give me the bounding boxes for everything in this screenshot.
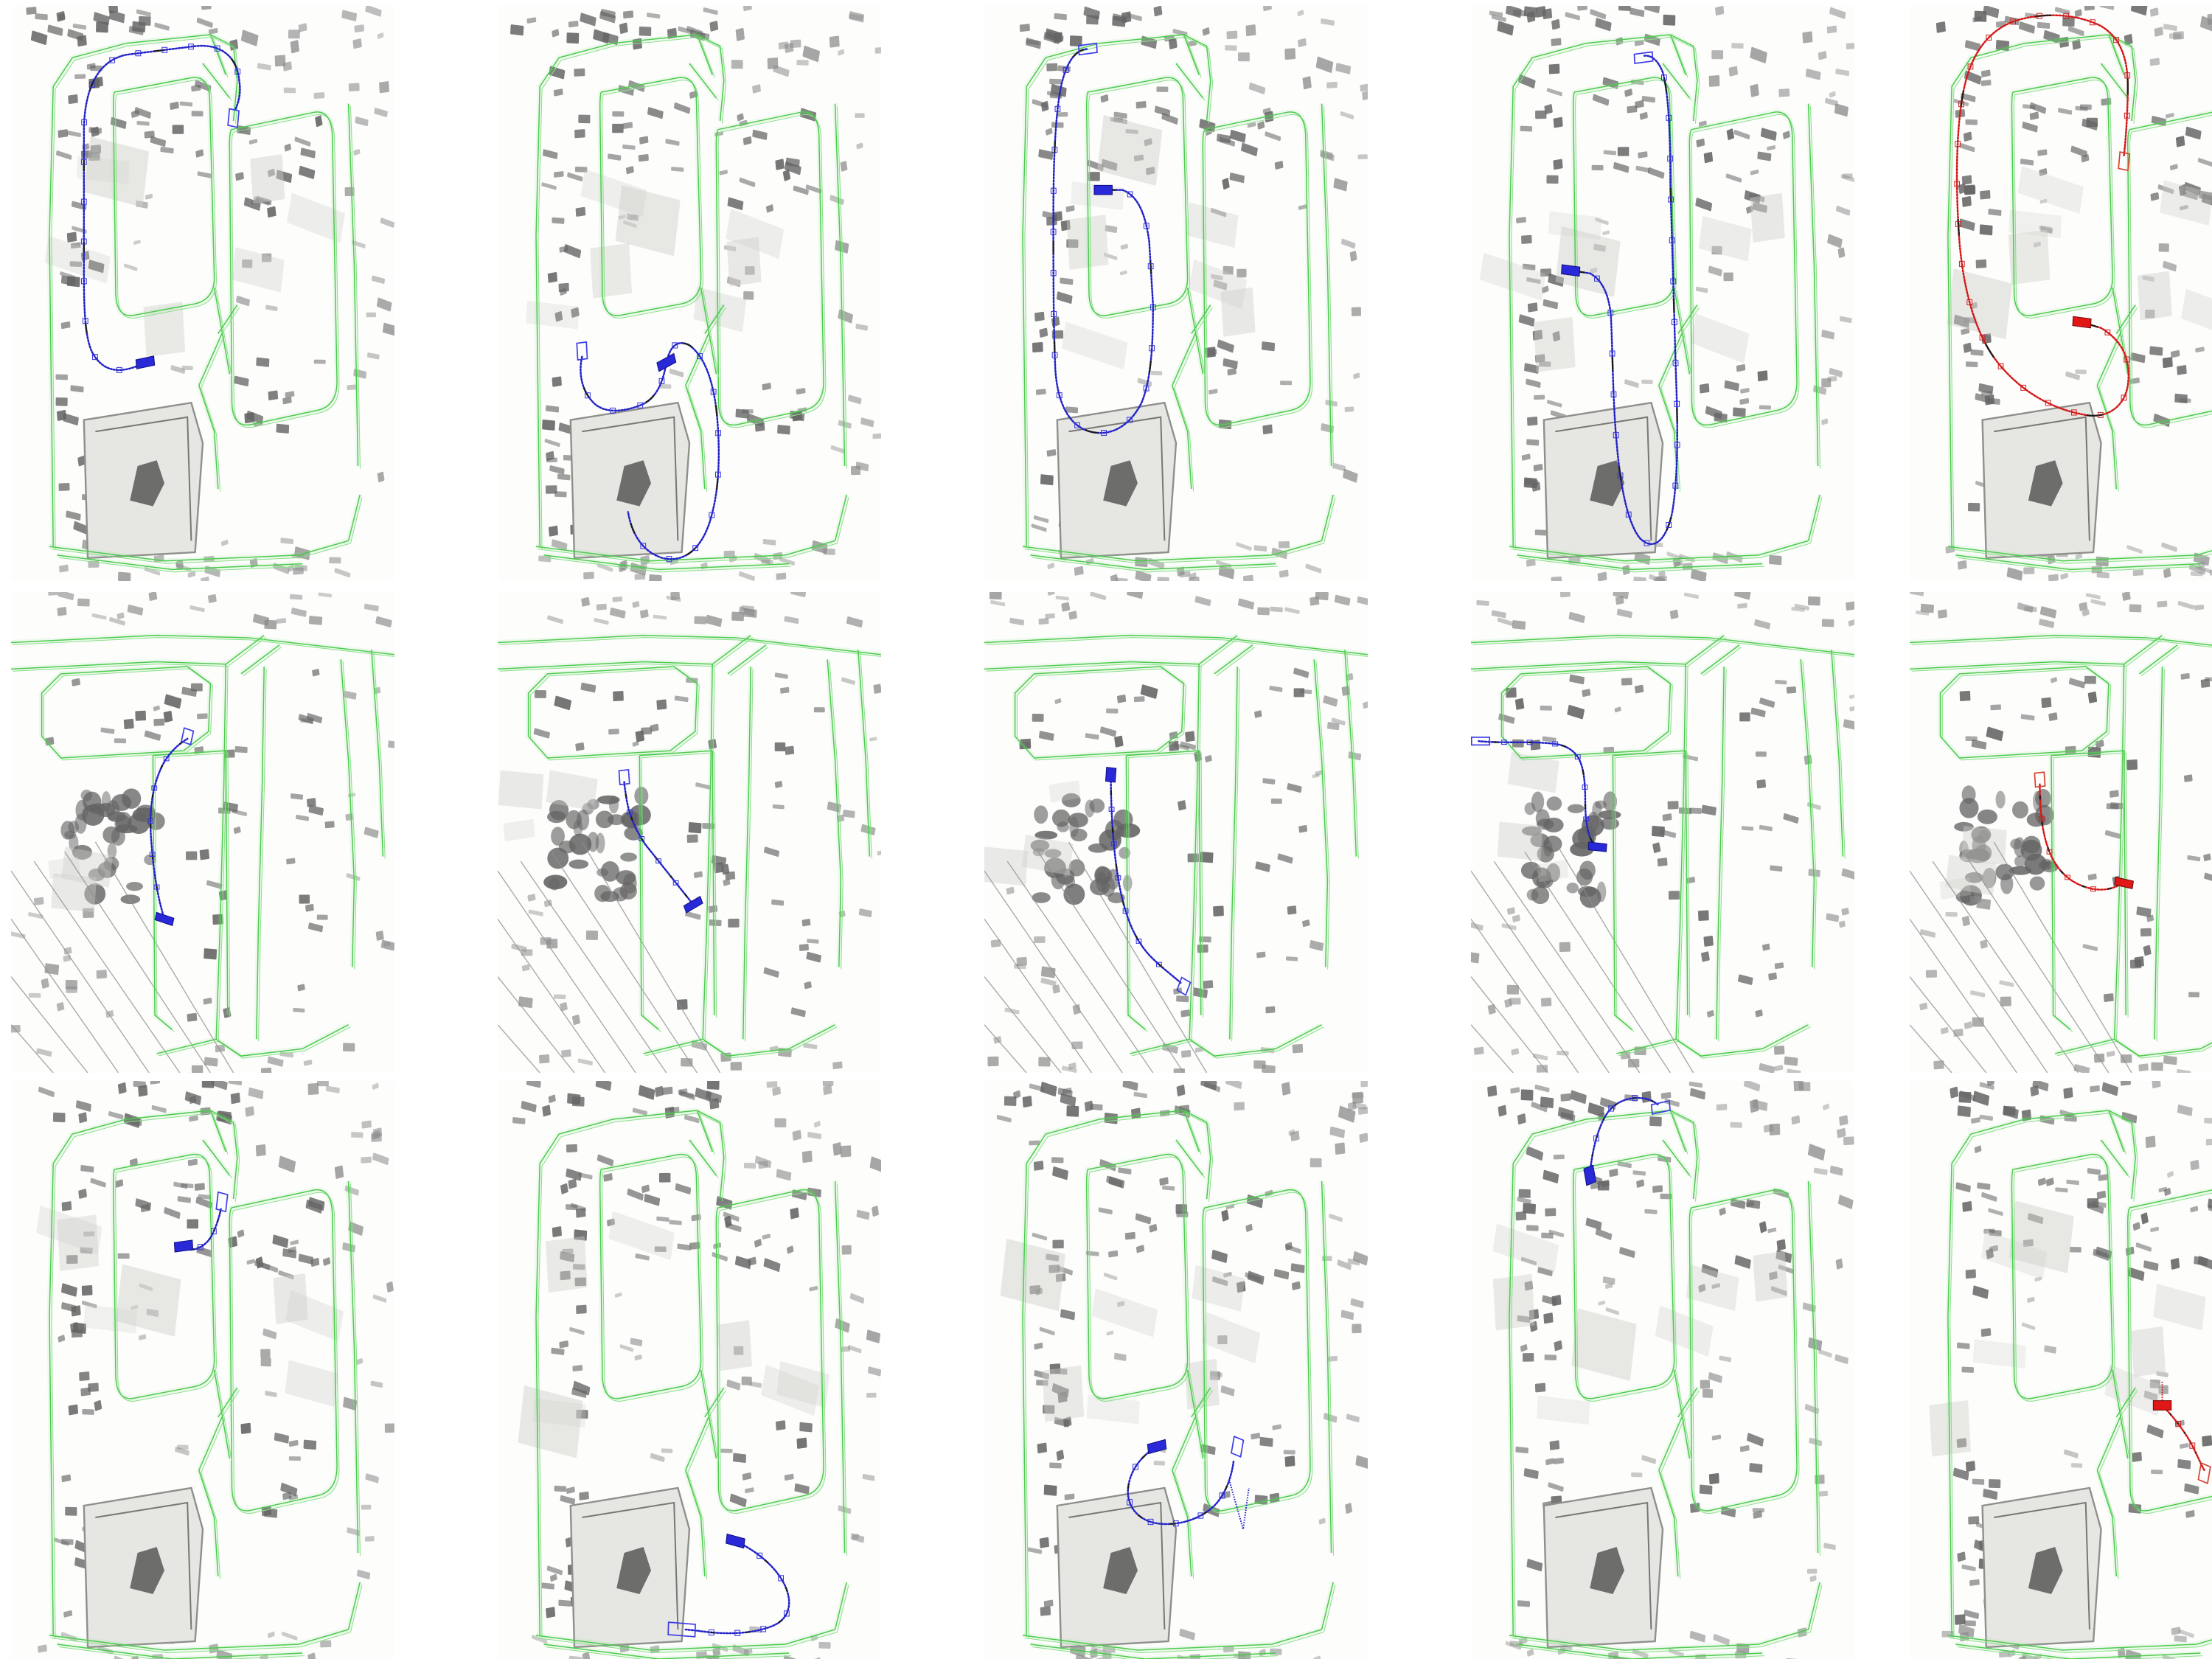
plaza-area: [571, 1488, 689, 1647]
aerial-map-canvas: [11, 1081, 394, 1659]
aerial-map-canvas: [11, 592, 394, 1073]
map-panel-r2c1: [11, 592, 394, 1073]
map-panel-r2c5: [1910, 592, 2212, 1073]
aerial-map-canvas: [1910, 1081, 2212, 1659]
aerial-map-canvas: [1471, 1081, 1854, 1659]
map-panel-r1c3: [984, 6, 1368, 581]
trajectory-results-figure: [0, 0, 2212, 1659]
aerial-map-canvas: [11, 6, 394, 581]
map-panel-r3c3: [984, 1081, 1368, 1659]
map-panel-r1c4: [1471, 6, 1854, 581]
aerial-map-canvas: [498, 592, 881, 1073]
aerial-map-canvas: [498, 6, 881, 581]
ego-vehicle-marker: [1105, 768, 1116, 782]
aerial-map-canvas: [984, 592, 1368, 1073]
map-panel-r1c5: [1910, 6, 2212, 581]
aerial-map-canvas: [984, 6, 1368, 581]
ego-vehicle-marker: [2153, 1401, 2171, 1411]
aerial-map-canvas: [1910, 6, 2212, 581]
aerial-map-canvas: [1471, 592, 1854, 1073]
map-panel-r3c4: [1471, 1081, 1854, 1659]
map-panel-r1c1: [11, 6, 394, 581]
ego-vehicle-marker: [174, 1240, 192, 1252]
plaza-area: [1544, 403, 1663, 558]
map-panel-r2c3: [984, 592, 1368, 1073]
ego-vehicle-marker: [2073, 316, 2091, 328]
aerial-map-canvas: [1910, 592, 2212, 1073]
plaza-area: [1983, 1488, 2101, 1647]
ego-vehicle-marker: [1562, 265, 1580, 276]
plaza-area: [84, 1488, 203, 1647]
ego-vehicle-marker: [1094, 185, 1112, 194]
plaza-area: [1983, 403, 2101, 558]
aerial-map-canvas: [498, 1081, 881, 1659]
aerial-map-canvas: [984, 1081, 1368, 1659]
map-panel-r2c2: [498, 592, 881, 1073]
plaza-area: [84, 403, 203, 558]
aerial-map-canvas: [1471, 6, 1854, 581]
map-panel-r3c1: [11, 1081, 394, 1659]
plaza-area: [1057, 1488, 1176, 1647]
map-panel-r3c2: [498, 1081, 881, 1659]
map-panel-r2c4: [1471, 592, 1854, 1073]
map-panel-r1c2: [498, 6, 881, 581]
map-panel-r3c5: [1910, 1081, 2212, 1659]
ego-vehicle-marker: [1588, 842, 1607, 852]
plaza-area: [1544, 1488, 1663, 1647]
plaza-area: [571, 403, 689, 558]
